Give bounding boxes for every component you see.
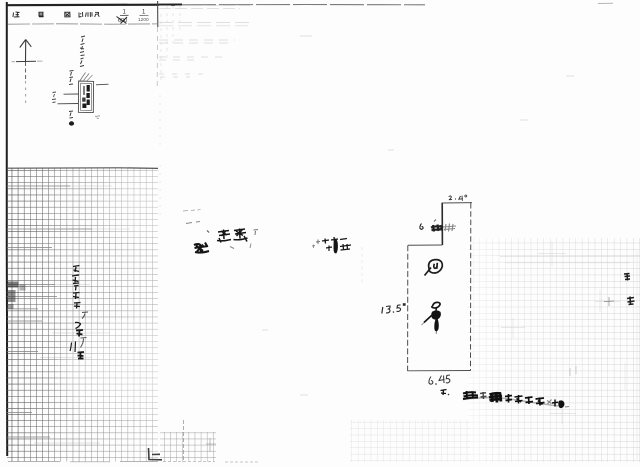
svg-text:1200: 1200 xyxy=(138,17,149,23)
